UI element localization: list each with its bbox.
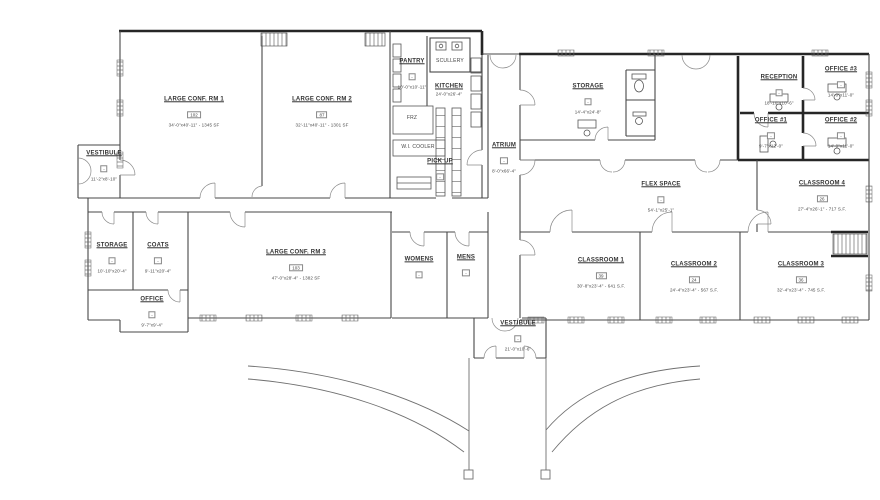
- room-number-tag: -: [436, 173, 444, 181]
- room-name: STORAGE: [97, 242, 128, 249]
- room-number-tag: -: [775, 89, 783, 97]
- room-number-tag: 103: [289, 264, 303, 272]
- room-label-storage: STORAGE-14'-4"x24'-8": [573, 83, 604, 114]
- room-dimensions: 11'-2"x8'-10": [86, 177, 121, 182]
- room-labels-layer: LARGE CONF. RM 110234'-0"x40'-11" - 1345…: [0, 0, 880, 500]
- room-label-classroom-4: CLASSROOM 42627'-4"x26'-1" - 717 S.F.: [798, 180, 846, 211]
- room-label-flex-space: FLEX SPACE-54'-1"x25'-1": [641, 181, 680, 212]
- room-number-tag: -: [408, 73, 416, 81]
- room-label-office-1: OFFICE #1-9'-7"x12'-0": [755, 117, 787, 148]
- room-number-tag: -: [500, 157, 508, 165]
- room-label-kitchen: KITCHEN24'-0"x26'-4": [435, 83, 463, 96]
- room-label-coats: COATS-9'-11"x20'-4": [145, 242, 171, 273]
- room-name: VESTIBULE: [500, 320, 535, 327]
- room-name: MENS: [457, 254, 475, 261]
- room-dimensions: 34'-0"x40'-11" - 1345 SF: [164, 123, 224, 128]
- room-label-classroom-1: CLASSROOM 13930'-8"x23'-4" - 641 S.F.: [577, 257, 625, 288]
- room-number-tag: 87: [316, 111, 327, 119]
- room-number-tag: -: [462, 269, 470, 277]
- room-label-large-conf-rm-3: LARGE CONF. RM 310347'-0"x28'-4" - 1382 …: [266, 249, 326, 280]
- room-number-tag: -: [837, 132, 845, 140]
- room-label-vestibule: VESTIBULE-21'-0"x10'-6": [500, 320, 535, 351]
- room-name: CLASSROOM 4: [798, 180, 846, 187]
- room-number-tag: -: [514, 335, 522, 343]
- room-dimensions: 54'-1"x25'-1": [641, 208, 680, 213]
- room-name: VESTIBULE: [86, 150, 121, 157]
- room-label-storage: STORAGE-10'-10"x20'-4": [97, 242, 128, 273]
- room-dimensions: 14'-0"x11'-0": [825, 93, 857, 98]
- room-dimensions: 8'-0"x66'-4": [492, 169, 516, 174]
- room-number-tag: -: [154, 257, 162, 265]
- room-dimensions: 10'-0"x10'-11": [398, 85, 427, 90]
- room-dimensions: 14'-0"x11'-0": [825, 144, 857, 149]
- room-dimensions: 32'-4"x23'-4" - 745 S.F.: [777, 288, 825, 293]
- room-label-classroom-3: CLASSROOM 33632'-4"x23'-4" - 745 S.F.: [777, 261, 825, 292]
- room-name: CLASSROOM 2: [670, 261, 718, 268]
- room-name: LARGE CONF. RM 2: [292, 96, 352, 103]
- room-name: PANTRY: [398, 58, 427, 65]
- floor-plan: LARGE CONF. RM 110234'-0"x40'-11" - 1345…: [0, 0, 880, 500]
- room-dimensions: 21'-0"x10'-6": [500, 347, 535, 352]
- room-name: PICK UP: [427, 158, 453, 165]
- room-label-scullery: SCULLERY: [436, 59, 464, 65]
- room-dimensions: 10'-10"x20'-4": [97, 269, 128, 274]
- room-label-w-i-cooler: W.I. COOLER: [401, 145, 434, 151]
- room-number-tag: 26: [816, 195, 827, 203]
- room-number-tag: 39: [595, 272, 606, 280]
- room-name: LARGE CONF. RM 1: [164, 96, 224, 103]
- room-number-tag: 36: [795, 276, 806, 284]
- room-label-atrium: ATRIUM-8'-0"x66'-4": [492, 142, 516, 173]
- room-dimensions: 47'-0"x28'-4" - 1382 SF: [266, 276, 326, 281]
- room-label-reception: RECEPTION-18'-10"x10'-6": [761, 74, 798, 105]
- room-number-tag: -: [767, 132, 775, 140]
- room-number-tag: 24: [688, 276, 699, 284]
- room-dimensions: 14'-4"x24'-8": [573, 110, 604, 115]
- room-label-office-2: OFFICE #2-14'-0"x11'-0": [825, 117, 857, 148]
- room-number-tag: -: [148, 311, 156, 319]
- room-label-pick-up: PICK UP-: [427, 158, 453, 183]
- room-name: OFFICE #1: [755, 117, 787, 124]
- room-dimensions: 9'-11"x20'-4": [145, 269, 171, 274]
- room-name: CLASSROOM 3: [777, 261, 825, 268]
- room-dimensions: 18'-10"x10'-6": [761, 101, 798, 106]
- room-dimensions: 27'-4"x26'-1" - 717 S.F.: [798, 207, 846, 212]
- room-name: COATS: [145, 242, 171, 249]
- room-name: ATRIUM: [492, 142, 516, 149]
- room-label-office-3: OFFICE #3-14'-0"x11'-0": [825, 66, 857, 97]
- room-name: FRZ: [407, 116, 417, 122]
- room-name: FLEX SPACE: [641, 181, 680, 188]
- room-dimensions: 9'-7"x12'-0": [755, 144, 787, 149]
- room-dimensions: 24'-4"x23'-4" - 567 S.F.: [670, 288, 718, 293]
- room-name: CLASSROOM 1: [577, 257, 625, 264]
- room-name: WOMENS: [405, 256, 434, 263]
- room-label-mens: MENS-: [457, 254, 475, 279]
- room-dimensions: 24'-0"x26'-4": [435, 91, 463, 96]
- room-label-vestibule: VESTIBULE-11'-2"x8'-10": [86, 150, 121, 181]
- room-name: STORAGE: [573, 83, 604, 90]
- room-label-large-conf-rm-1: LARGE CONF. RM 110234'-0"x40'-11" - 1345…: [164, 96, 224, 127]
- room-dimensions: 9'-7"x9'-4": [140, 323, 163, 328]
- room-number-tag: -: [108, 257, 116, 265]
- room-name: OFFICE #2: [825, 117, 857, 124]
- room-name: OFFICE: [140, 296, 163, 303]
- room-name: SCULLERY: [436, 59, 464, 65]
- room-label-classroom-2: CLASSROOM 22424'-4"x23'-4" - 567 S.F.: [670, 261, 718, 292]
- room-label-office: OFFICE-9'-7"x9'-4": [140, 296, 163, 327]
- room-name: W.I. COOLER: [401, 145, 434, 151]
- room-number-tag: -: [584, 98, 592, 106]
- room-number-tag: -: [100, 165, 108, 173]
- room-number-tag: -: [657, 196, 665, 204]
- room-dimensions: 32'-11"x40'-11" - 1301 SF: [292, 123, 352, 128]
- room-name: RECEPTION: [761, 74, 798, 81]
- room-label-womens: WOMENS-: [405, 256, 434, 281]
- room-number-tag: -: [837, 81, 845, 89]
- room-label-pantry: PANTRY-10'-0"x10'-11": [398, 58, 427, 89]
- room-label-frz: FRZ: [407, 116, 417, 122]
- room-name: LARGE CONF. RM 3: [266, 249, 326, 256]
- room-number-tag: -: [415, 271, 423, 279]
- room-name: OFFICE #3: [825, 66, 857, 73]
- room-dimensions: 30'-8"x23'-4" - 641 S.F.: [577, 284, 625, 289]
- room-number-tag: 102: [187, 111, 201, 119]
- room-name: KITCHEN: [435, 83, 463, 90]
- room-label-large-conf-rm-2: LARGE CONF. RM 28732'-11"x40'-11" - 1301…: [292, 96, 352, 127]
